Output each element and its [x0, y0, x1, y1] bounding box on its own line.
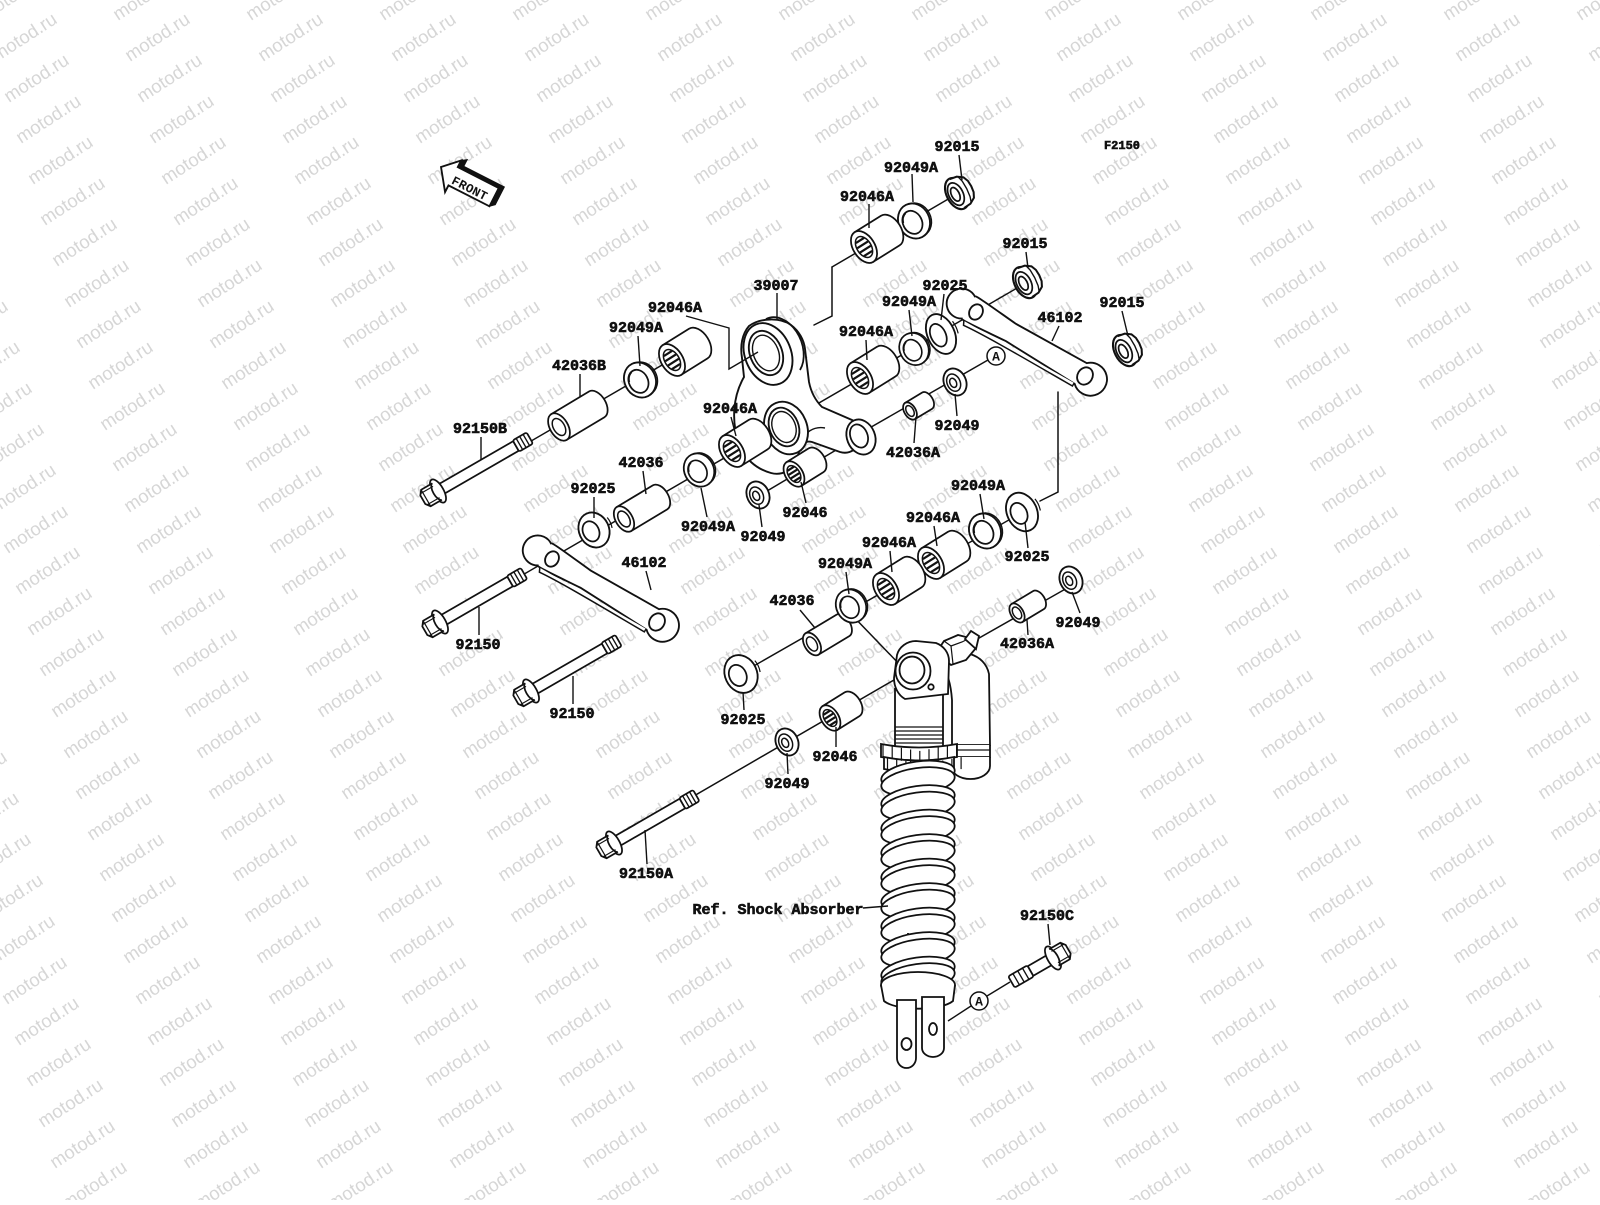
svg-text:92046A: 92046A [703, 401, 757, 418]
svg-text:42036A: 42036A [1000, 636, 1054, 653]
svg-text:92150B: 92150B [453, 421, 507, 438]
svg-text:92046A: 92046A [840, 189, 894, 206]
svg-text:92046: 92046 [812, 749, 857, 766]
svg-text:92015: 92015 [1099, 295, 1144, 312]
svg-text:92049: 92049 [1055, 615, 1100, 632]
svg-text:92015: 92015 [1002, 236, 1047, 253]
svg-text:92025: 92025 [1004, 549, 1049, 566]
svg-text:92015: 92015 [934, 139, 979, 156]
svg-text:92150A: 92150A [619, 866, 673, 883]
svg-text:F2150: F2150 [1104, 139, 1140, 153]
svg-text:92049A: 92049A [882, 294, 936, 311]
svg-text:42036: 42036 [618, 455, 663, 472]
svg-text:92046A: 92046A [906, 510, 960, 527]
svg-text:92025: 92025 [922, 278, 967, 295]
svg-text:46102: 46102 [621, 555, 666, 572]
svg-text:42036: 42036 [769, 593, 814, 610]
svg-text:92049A: 92049A [681, 519, 735, 536]
svg-text:46102: 46102 [1037, 310, 1082, 327]
svg-text:92049A: 92049A [884, 160, 938, 177]
svg-text:92049: 92049 [740, 529, 785, 546]
svg-text:92046A: 92046A [648, 300, 702, 317]
svg-text:92049A: 92049A [609, 320, 663, 337]
svg-text:92046: 92046 [782, 505, 827, 522]
svg-text:39007: 39007 [753, 278, 798, 295]
svg-text:92025: 92025 [570, 481, 615, 498]
svg-text:Ref. Shock Absorber: Ref. Shock Absorber [692, 902, 863, 919]
svg-text:42036A: 42036A [886, 445, 940, 462]
svg-text:92049: 92049 [764, 776, 809, 793]
svg-text:42036B: 42036B [552, 358, 606, 375]
svg-text:92049A: 92049A [951, 478, 1005, 495]
svg-text:92150C: 92150C [1020, 908, 1074, 925]
svg-text:A: A [975, 995, 983, 1010]
svg-text:92150: 92150 [549, 706, 594, 723]
svg-text:92049: 92049 [934, 418, 979, 435]
svg-text:92025: 92025 [720, 712, 765, 729]
svg-text:92046A: 92046A [862, 535, 916, 552]
svg-text:92046A: 92046A [839, 324, 893, 341]
svg-text:92150: 92150 [455, 637, 500, 654]
svg-text:92049A: 92049A [818, 556, 872, 573]
svg-text:A: A [992, 350, 1000, 365]
